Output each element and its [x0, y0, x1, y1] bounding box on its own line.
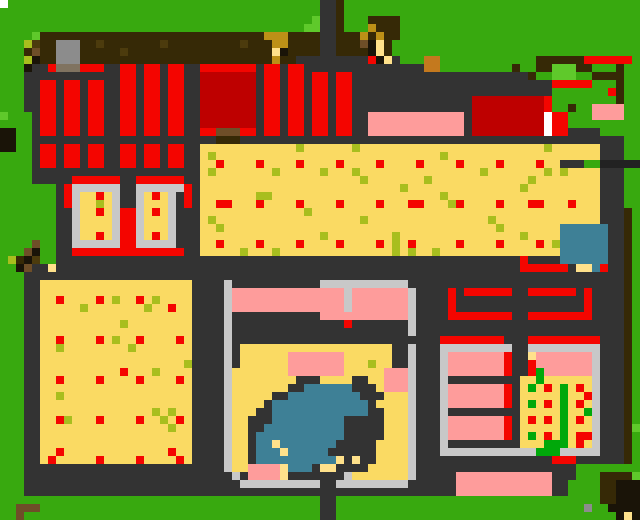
game-map[interactable] [0, 0, 640, 520]
pixel-map-canvas[interactable] [0, 0, 640, 520]
